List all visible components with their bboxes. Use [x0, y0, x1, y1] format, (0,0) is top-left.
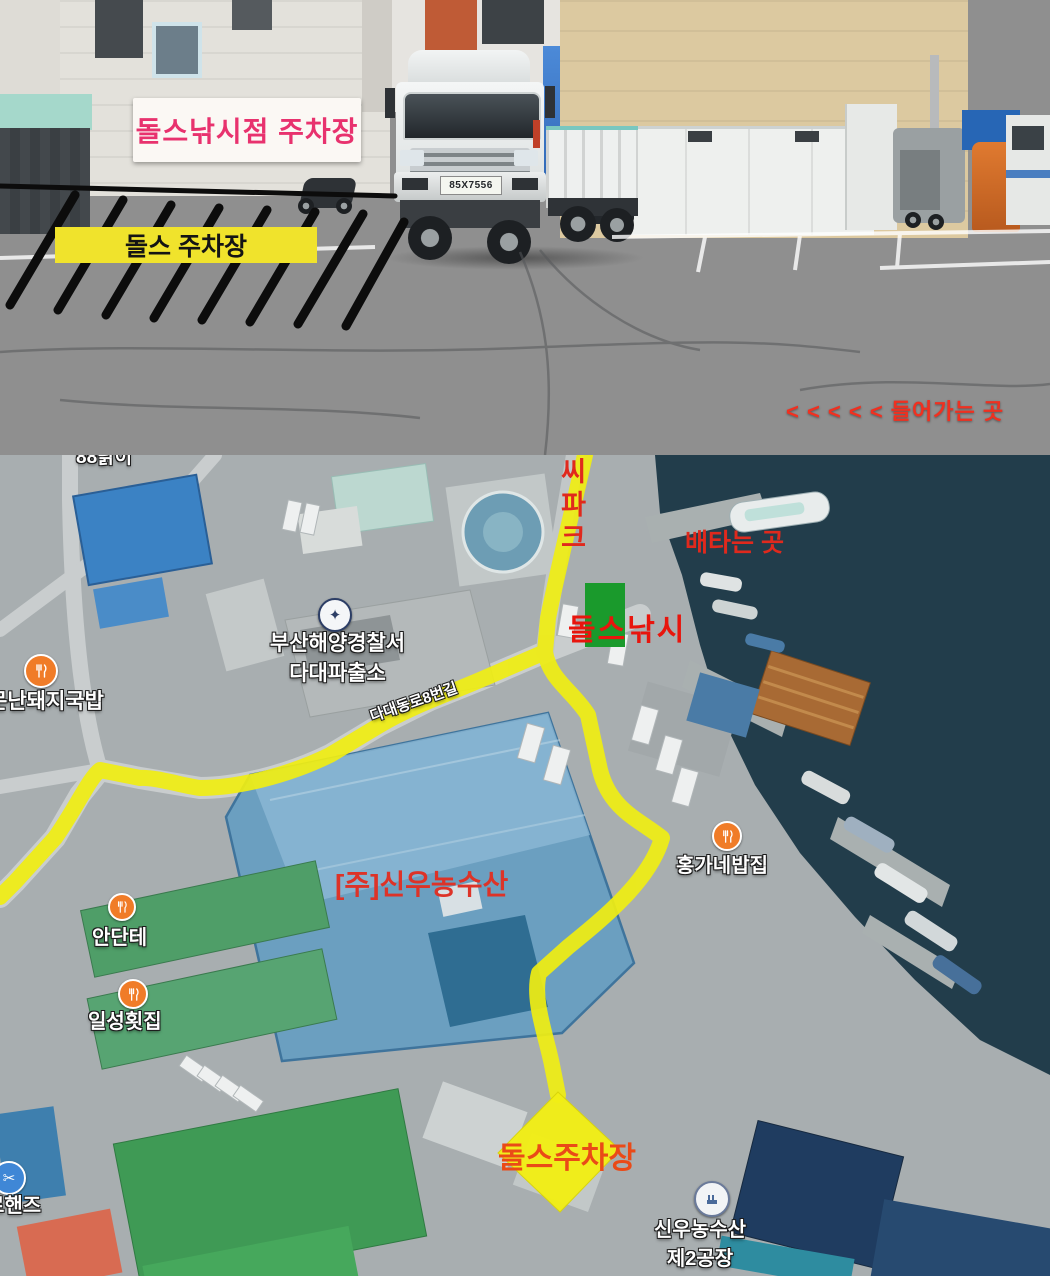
entrance-arrows-text: < < < < < 들어가는 곳 [786, 394, 1050, 426]
parking-label-text: 돌스 주차장 [125, 227, 247, 263]
shop-parking-sign: 돌스낚시점 주차장 [133, 98, 361, 162]
label-boat-place: 배타는 곳 [685, 523, 784, 559]
fork-knife-glyph [116, 901, 128, 913]
label-sinwoo: [주]신우농수산 [335, 863, 508, 903]
label-top-cut: 88닭이 [76, 455, 132, 469]
police-label: 부산해양경찰서 다대파출소 [255, 627, 420, 687]
guide-image: 85X7556 [0, 0, 1050, 1276]
satellite-map: 88닭이 씨파크 배타는 곳 돌스낚시 ✦ 부산해양경찰서 다대파출소 다대동로… [0, 455, 1050, 1276]
label-hands: 르핸즈 [0, 1189, 41, 1218]
fork-knife-glyph [34, 664, 48, 678]
label-gukbap: 문난돼지국밥 [0, 685, 104, 715]
parking-label: 돌스 주차장 [55, 227, 317, 263]
label-seapark: 씨파크 [552, 457, 591, 556]
restaurant-icon [712, 821, 742, 851]
parking-lot-photo: 85X7556 [0, 0, 1050, 455]
label-ilseong: 일성횟집 [88, 1005, 162, 1034]
factory-glyph [704, 1191, 720, 1207]
fork-knife-glyph [721, 830, 734, 843]
factory-label: 신우농수산 제2공장 [640, 1213, 760, 1271]
shop-parking-sign-text: 돌스낚시점 주차장 [136, 110, 359, 150]
label-dols-fishing: 돌스낚시 [568, 605, 686, 649]
fork-knife-glyph [127, 988, 140, 1001]
label-honggane: 홍가네밥집 [676, 849, 768, 878]
restaurant-icon [24, 654, 58, 688]
label-andante: 안단테 [92, 921, 147, 950]
factory-icon [694, 1181, 730, 1217]
label-dols-parking: 돌스주차장 [498, 1133, 636, 1177]
restaurant-icon [108, 893, 136, 921]
